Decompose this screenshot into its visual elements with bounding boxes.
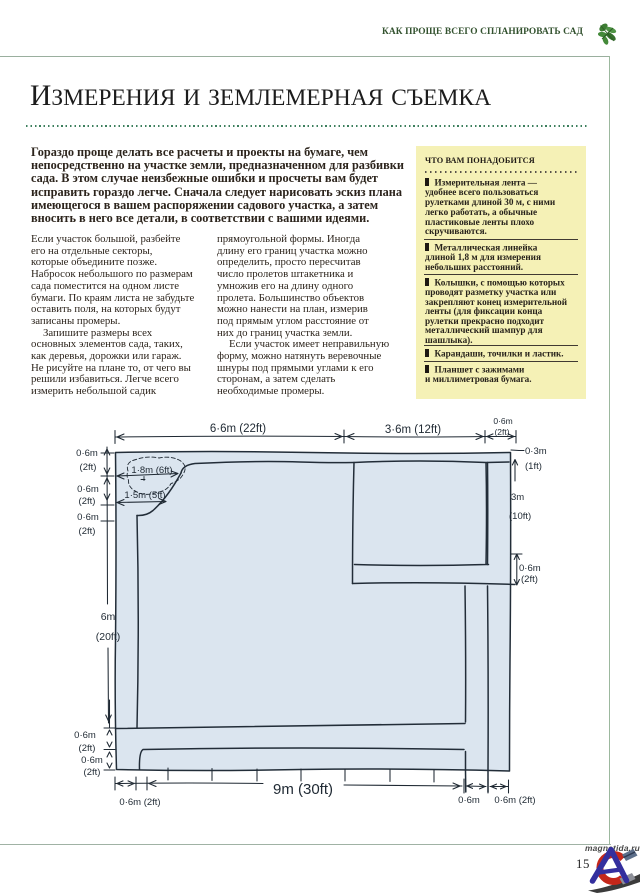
svg-text:(2ft): (2ft): [79, 526, 96, 537]
svg-text:(1ft): (1ft): [525, 461, 542, 472]
svg-text:(20ft): (20ft): [96, 631, 121, 643]
svg-text:0·6m: 0·6m: [76, 448, 98, 459]
svg-text:1·8m (6ft): 1·8m (6ft): [131, 465, 172, 476]
svg-text:1·5m (5ft): 1·5m (5ft): [124, 490, 165, 501]
svg-text:0·6m: 0·6m: [74, 730, 96, 741]
svg-text:0·6m: 0·6m: [458, 795, 480, 806]
svg-text:0·6m (2ft): 0·6m (2ft): [494, 795, 535, 806]
svg-text:6m: 6m: [101, 611, 116, 623]
svg-text:0·6m (2ft): 0·6m (2ft): [119, 797, 160, 808]
svg-text:(2ft): (2ft): [79, 496, 96, 507]
svg-text:0·6m: 0·6m: [77, 512, 99, 523]
svg-text:(2ft): (2ft): [84, 767, 101, 778]
svg-text:0·6m: 0·6m: [493, 416, 512, 426]
svg-text:0·6m: 0·6m: [519, 563, 541, 574]
svg-text:6·6m (22ft): 6·6m (22ft): [210, 423, 266, 435]
svg-text:(2ft): (2ft): [79, 743, 96, 754]
svg-text:3m: 3m: [511, 492, 524, 503]
svg-text:(2ft): (2ft): [521, 574, 538, 585]
svg-text:3·6m (12ft): 3·6m (12ft): [385, 424, 441, 436]
svg-text:(2ft): (2ft): [494, 427, 509, 437]
svg-text:0·3m: 0·3m: [525, 446, 547, 457]
svg-text:(10ft): (10ft): [509, 511, 531, 522]
svg-text:0·6m: 0·6m: [77, 484, 99, 495]
svg-text:9m (30ft): 9m (30ft): [273, 781, 333, 798]
svg-text:(2ft): (2ft): [80, 462, 97, 473]
svg-text:0·6m: 0·6m: [81, 755, 103, 766]
